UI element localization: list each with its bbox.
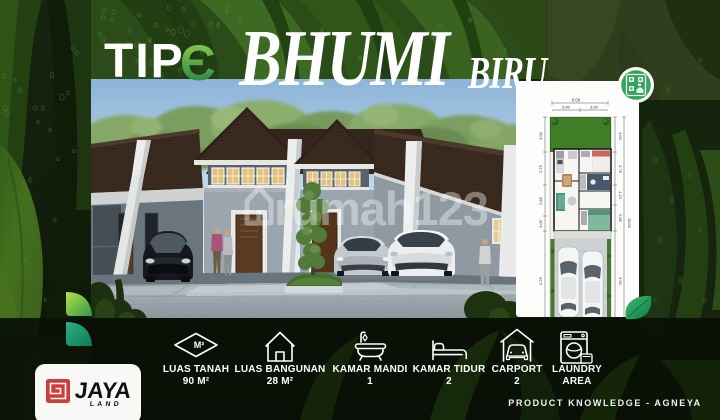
svg-text:3.30: 3.30: [618, 277, 623, 286]
svg-text:LAND: LAND: [89, 401, 122, 408]
svg-text:6.00: 6.00: [572, 98, 581, 103]
svg-text:3.00: 3.00: [590, 105, 599, 110]
svg-text:Є: Є: [180, 35, 216, 84]
svg-text:2.75: 2.75: [538, 164, 543, 173]
svg-text:3.00: 3.00: [618, 132, 623, 141]
svg-text:1.05: 1.05: [538, 219, 543, 228]
svg-text:2.85: 2.85: [538, 196, 543, 205]
svg-text:3.00: 3.00: [562, 105, 571, 110]
svg-text:5.25: 5.25: [538, 276, 543, 285]
svg-text:1.23: 1.23: [618, 191, 623, 200]
svg-text:15.00: 15.00: [627, 218, 632, 229]
svg-text:rumah123: rumah123: [274, 182, 488, 235]
svg-text:JAYA: JAYA: [74, 378, 132, 403]
svg-text:2.65: 2.65: [618, 214, 623, 223]
svg-text:3.00: 3.00: [538, 131, 543, 140]
svg-text:M²: M²: [194, 340, 205, 350]
svg-text:2.75: 2.75: [618, 165, 623, 174]
